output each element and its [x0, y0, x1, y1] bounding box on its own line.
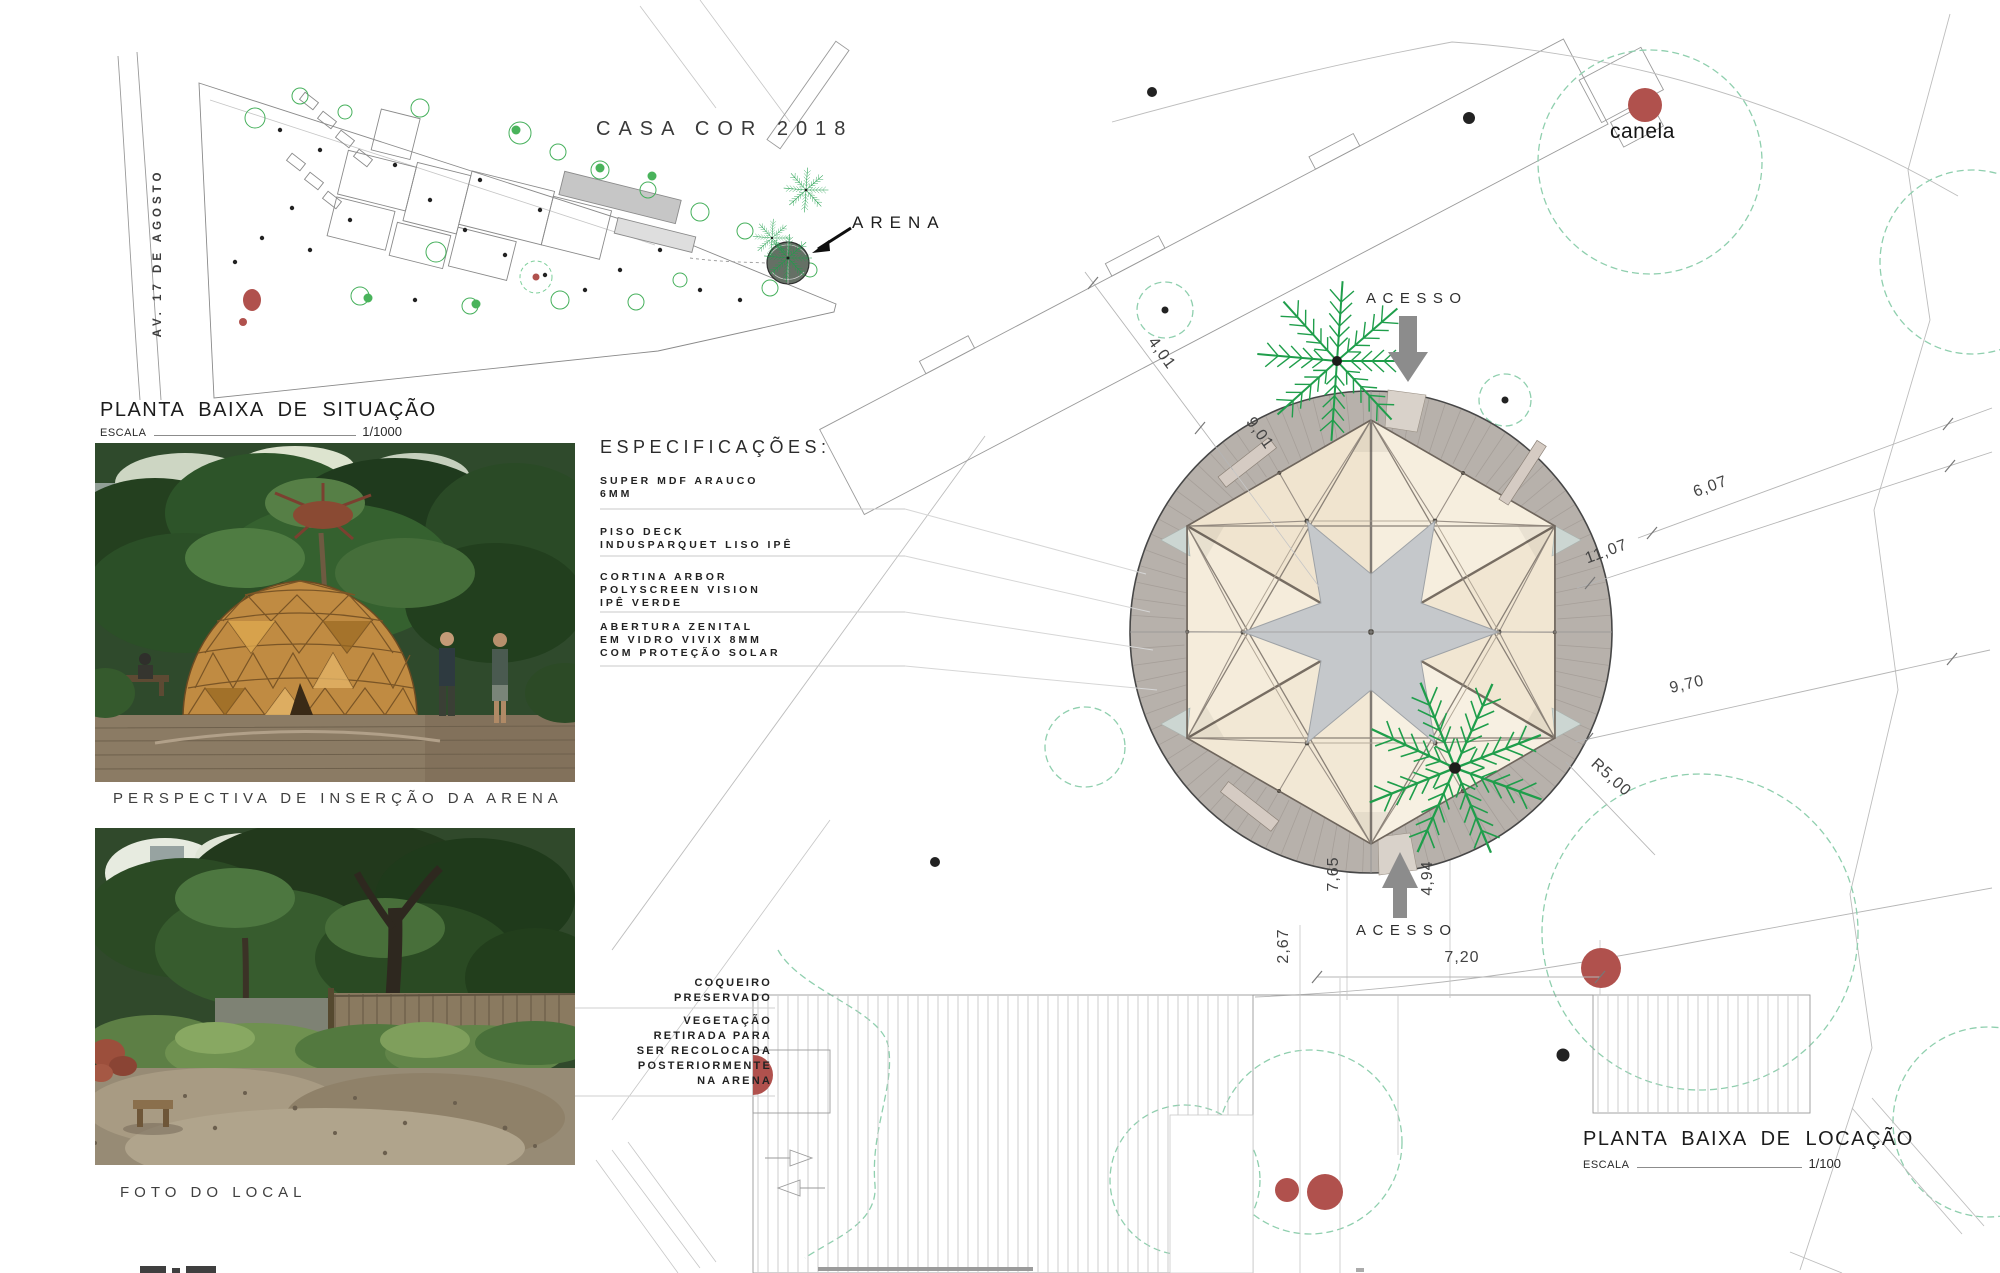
dim-r5-00: R5,00 [1588, 755, 1635, 800]
dim-6-07: 6,07 [1691, 473, 1730, 501]
photo-caption: FOTO DO LOCAL [120, 1184, 306, 1201]
dim-4-94: 4,94 [1419, 860, 1436, 895]
dim-9-70: 9,70 [1668, 672, 1706, 696]
red-blob [243, 289, 261, 311]
situation-plan-drawing [118, 52, 851, 400]
scale-value: 1/1000 [362, 424, 402, 439]
perspective-photo [95, 443, 575, 782]
avenue-label: AV. 17 DE AGOSTO [152, 169, 164, 338]
dim-4-01: 4,01 [1144, 334, 1178, 372]
site-photo-illustration [95, 828, 575, 1165]
acesso-arrow-down-icon [1388, 316, 1428, 382]
canela-label: canela [1610, 120, 1675, 144]
scale-value: 1/100 [1808, 1156, 1841, 1171]
scale-label: ESCALA [100, 427, 146, 439]
arena-dome-plan [1095, 367, 1646, 898]
situation-plan-title: PLANTA BAIXA DE SITUAÇÃO [100, 399, 437, 422]
casa-cor-title: CASA COR 2018 [596, 118, 853, 141]
site-photo [95, 828, 575, 1165]
arena-arrow-icon [812, 228, 851, 253]
acesso-bottom-label: ACESSO [1356, 922, 1458, 939]
specs-heading: ESPECIFICAÇÕES: [600, 437, 831, 458]
hatched-roof [559, 171, 681, 223]
perspective-photo-illustration [95, 443, 575, 782]
spec-item-3: CORTINA ARBORPOLYSCREEN VISIONIPÊ VERDE [600, 571, 761, 610]
door-arrows [765, 1150, 825, 1196]
spec-item-1: SUPER MDF ARAUCO6MM [600, 475, 758, 501]
arena-label: ARENA [852, 213, 946, 233]
deck-area-right [1593, 995, 1810, 1113]
location-scale-row: ESCALA 1/100 [1583, 1156, 1841, 1171]
acesso-top-label: ACESSO [1366, 290, 1468, 307]
coqueiro-annotation: COQUEIROPRESERVADO [674, 976, 772, 1006]
spec-item-2: PISO DECKINDUSPARQUET LISO IPÊ [600, 526, 794, 552]
location-plan-title: PLANTA BAIXA DE LOCAÇÃO [1583, 1128, 1914, 1151]
dim-7-65: 7,65 [1325, 856, 1342, 891]
dim-2-67: 2,67 [1275, 928, 1292, 963]
dim-7-20: 7,20 [1444, 949, 1479, 966]
red-dot [239, 318, 247, 326]
stairs-lines [596, 1142, 716, 1273]
scale-label: ESCALA [1583, 1159, 1629, 1171]
scale-rule [154, 434, 356, 436]
presentation-board: 4,01 9,01 6,07 11,07 9,70 R5,00 7,65 4,9… [0, 0, 2000, 1273]
red-trunk-dot [533, 274, 540, 281]
spec-item-4: ABERTURA ZENITALEM VIDRO VIVIX 8MMCOM PR… [600, 621, 781, 660]
scale-rule [1637, 1166, 1802, 1168]
perspective-caption: PERSPECTIVA DE INSERÇÃO DA ARENA [113, 790, 563, 807]
parked-cars [287, 92, 373, 209]
vegetacao-annotation: VEGETAÇÃORETIRADA PARA SER RECOLOCADAPOS… [637, 1014, 772, 1089]
situation-scale-row: ESCALA 1/1000 [100, 424, 402, 439]
